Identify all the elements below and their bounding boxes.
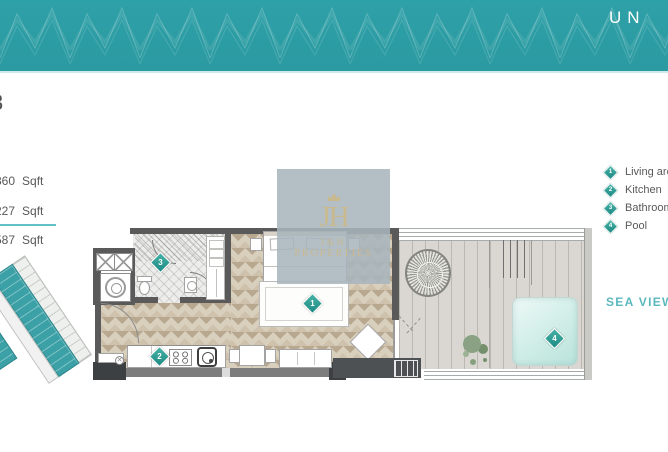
legend-item-kitchen: 2 Kitchen (605, 184, 668, 196)
washer-core (111, 283, 122, 294)
area-unit: Sqft (22, 233, 43, 247)
kitchen-sink (197, 347, 217, 367)
legend-label: Living area (625, 166, 668, 178)
dining-chair (265, 349, 276, 363)
legend-label: Pool (625, 220, 647, 232)
storage-cell (115, 254, 132, 270)
legend-item-pool: 4 Pool (605, 220, 668, 232)
plunge-pool (512, 297, 578, 366)
legend-label: Bathroom (625, 202, 668, 214)
terrace-right-wall (584, 228, 592, 380)
zigzag-pattern (0, 0, 668, 71)
legend-diamond-icon: 1 (603, 164, 619, 180)
legend-label: Kitchen (625, 184, 662, 196)
stove-burners (169, 349, 192, 366)
terrace-railing-bottom (424, 368, 584, 380)
hanging-egg-chair (405, 249, 451, 297)
egg-chair-seat (417, 262, 443, 288)
wall-bottom (230, 368, 331, 377)
closet-rod (216, 269, 217, 297)
dining-table (239, 345, 265, 366)
privacy-screen-slat (489, 240, 490, 288)
wall-terrace-boundary (392, 228, 399, 320)
area-value: 227 (0, 204, 15, 218)
area-row-total: 587 Sqft (0, 233, 43, 247)
area-unit: Sqft (22, 174, 43, 188)
area-value: 587 (0, 233, 15, 247)
legend-diamond-icon: 3 (603, 200, 619, 216)
keyplan-building (0, 260, 83, 381)
privacy-screen-slat (517, 240, 518, 278)
unit-number: 3 (0, 90, 3, 116)
terrace-bench (333, 358, 421, 378)
legend-item-living-area: 1 Living area (605, 166, 668, 178)
wall-bathroom-right (225, 228, 231, 303)
storage-unit (96, 253, 133, 271)
area-row-suite: 360 Sqft (0, 174, 43, 188)
watermark-name: J&H (320, 237, 346, 247)
potted-plant (463, 335, 481, 353)
dining-chair (229, 349, 240, 363)
storage-cell (97, 254, 115, 270)
legend: 1 Living area 2 Kitchen 3 Bathroom 4 Poo… (605, 166, 668, 232)
wardrobe-closet (206, 236, 225, 300)
nightstand (250, 238, 262, 251)
bottom-window (222, 368, 230, 377)
privacy-screen-slat (503, 240, 504, 278)
header-banner: UN (0, 0, 668, 73)
floor-drain-icon: ✕ (115, 356, 124, 365)
watermark-logo: JH J&H PROPERTIES (277, 169, 390, 284)
floorplan-page: UN 3 360 Sqft 227 Sqft 587 Sqft (0, 0, 668, 452)
area-unit: Sqft (22, 204, 43, 218)
sea-view-label: SEA VIEW (606, 295, 668, 309)
terrace-railing-top (399, 228, 584, 241)
sink-tap (209, 359, 213, 363)
privacy-screen-slat (524, 240, 525, 278)
privacy-screen-slat (510, 240, 511, 278)
total-divider-line (0, 224, 56, 226)
sofa (279, 349, 332, 368)
watermark-subtitle: PROPERTIES (294, 248, 372, 259)
page-title: UN (609, 8, 646, 28)
privacy-screen-slat (531, 240, 532, 285)
legend-diamond-icon: 2 (603, 182, 619, 198)
area-value: 360 (0, 174, 15, 188)
bench-slats (394, 360, 418, 377)
toilet-bowl (139, 281, 150, 295)
legend-diamond-icon: 4 (603, 218, 619, 234)
wall-bathroom-bottom (133, 297, 158, 303)
area-row-balcony: 227 Sqft (0, 204, 43, 218)
washing-machine (100, 273, 131, 302)
legend-item-bathroom: 3 Bathroom (605, 202, 668, 214)
watermark-monogram: JH (319, 203, 347, 231)
